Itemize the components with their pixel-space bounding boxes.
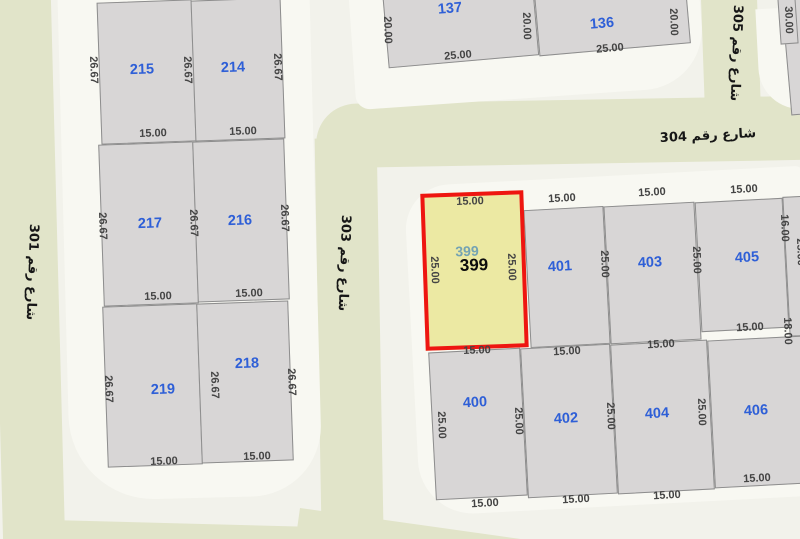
street-label-303: شارع رقم 303	[336, 215, 352, 312]
parcel-401[interactable]	[523, 206, 610, 348]
dimension-label: 25.00	[505, 253, 517, 281]
dimension-label: 15.00	[243, 451, 271, 463]
dimension-label: 15.00	[736, 322, 764, 334]
dimension-label: 25.00	[428, 256, 440, 284]
parcel-number-136: 136	[589, 16, 614, 33]
dimension-label: 15.00	[456, 196, 484, 208]
dimension-label: 15.00	[548, 193, 576, 205]
dimension-label: 25.00	[690, 246, 702, 274]
dimension-label: 15.00	[653, 490, 681, 502]
parcel-number-137: 137	[437, 1, 462, 18]
street-bottom-band-east	[289, 508, 612, 539]
parcel-number-218: 218	[235, 356, 260, 371]
dimension-label: 18.00	[781, 317, 793, 345]
dimension-label: 15.00	[730, 184, 758, 196]
parcel-number-405: 405	[735, 250, 760, 266]
parcel-number-404: 404	[645, 406, 670, 422]
dimension-label: 15.00	[471, 498, 499, 510]
dimension-label: 15.00	[235, 288, 263, 300]
dimension-label: 26.67	[102, 375, 114, 403]
dimension-label: 15.00	[743, 473, 771, 485]
parcel-number-401: 401	[548, 259, 573, 275]
dimension-label: 15.00	[562, 494, 590, 506]
street-label-305: شارع رقم 305	[728, 5, 744, 102]
parcel-number-403: 403	[638, 255, 663, 271]
dimension-label: 15.00	[150, 456, 178, 468]
dimension-label: 25.00	[598, 250, 610, 278]
dimension-label: 15.00	[229, 126, 257, 138]
dimension-label: 15.00	[463, 345, 491, 357]
dimension-label: 26.67	[87, 56, 99, 84]
street-303-band	[315, 137, 384, 523]
parcel-number-217: 217	[138, 216, 163, 231]
dimension-label: 16.00	[778, 214, 790, 242]
parcel-number-400: 400	[463, 395, 488, 411]
dimension-label: 30.00	[782, 6, 794, 34]
dimension-label: 15.00	[553, 346, 581, 358]
dimension-label: 20.00	[520, 12, 532, 40]
dimension-label: 26.67	[96, 212, 108, 240]
cadastral-map-canvas[interactable]: 2152142172162192181371364014034054004024…	[0, 0, 800, 539]
parcel-number-402: 402	[554, 411, 579, 427]
street-label-301: شارع رقم 301	[24, 224, 40, 321]
dimension-label: 25.00	[794, 238, 800, 266]
parcel-number-219: 219	[151, 382, 176, 397]
dimension-label: 25.00	[695, 398, 707, 426]
dimension-label: 15.00	[647, 339, 675, 351]
dimension-label: 25.00	[435, 411, 447, 439]
dimension-label: 15.00	[638, 187, 666, 199]
dimension-label: 25.00	[512, 407, 524, 435]
dimension-label: 26.67	[181, 56, 193, 84]
parcel-number-214: 214	[221, 60, 246, 75]
parcel-403[interactable]	[603, 202, 701, 345]
dimension-label: 25.00	[604, 402, 616, 430]
dimension-label: 20.00	[667, 8, 679, 36]
dimension-label: 26.67	[285, 368, 297, 396]
parcel-number-399: 399	[460, 256, 489, 274]
dimension-label: 15.00	[144, 291, 172, 303]
parcel-number-216: 216	[228, 213, 253, 228]
dimension-label: 15.00	[139, 128, 167, 140]
dimension-label: 26.67	[271, 53, 283, 81]
dimension-label: 26.67	[208, 371, 220, 399]
parcel-number-215: 215	[130, 62, 155, 77]
dimension-label: 26.67	[278, 204, 290, 232]
dimension-label: 26.67	[187, 209, 199, 237]
parcel-number-406: 406	[744, 403, 769, 419]
dimension-label: 20.00	[381, 16, 393, 44]
